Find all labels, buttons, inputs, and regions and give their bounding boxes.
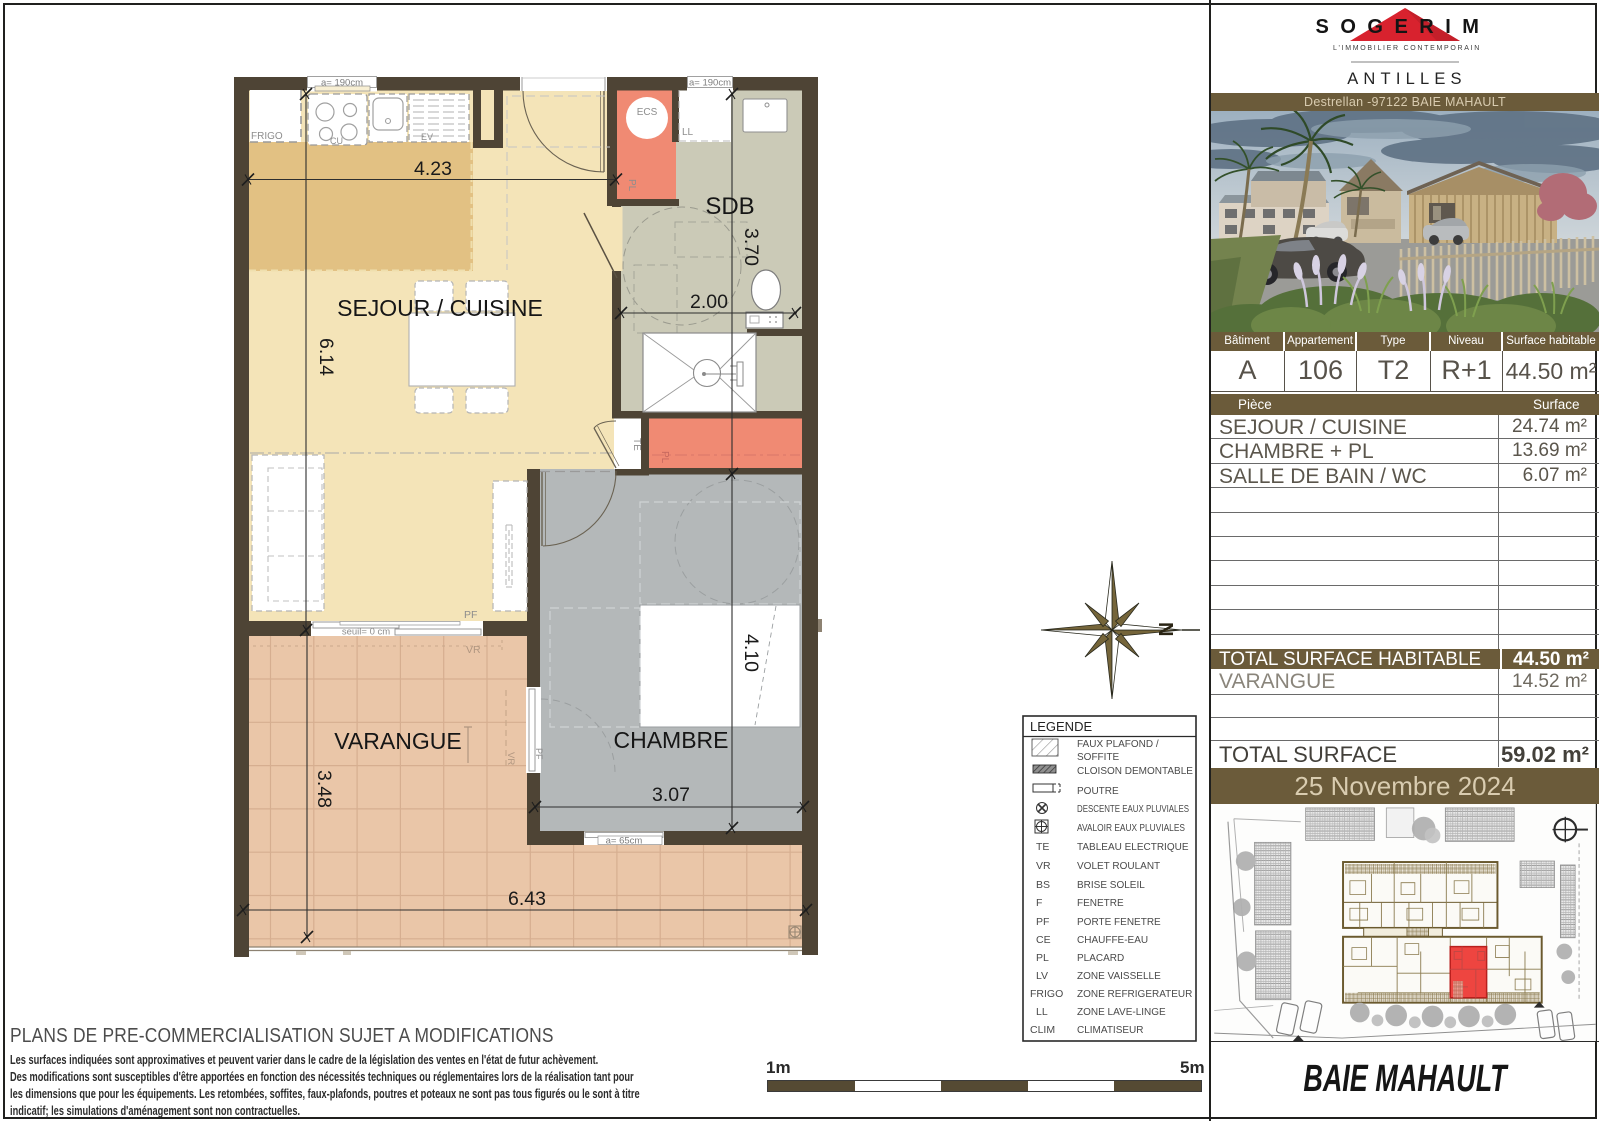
svg-text:a= 190cm: a= 190cm [689, 78, 731, 89]
svg-text:PF: PF [1036, 916, 1049, 928]
svg-text:CLIM: CLIM [1030, 1024, 1055, 1036]
svg-text:seuil= 0 cm: seuil= 0 cm [342, 627, 390, 638]
svg-text:TABLEAU ELECTRIQUE: TABLEAU ELECTRIQUE [1077, 842, 1189, 853]
svg-text:4.23: 4.23 [414, 158, 452, 180]
svg-text:PL: PL [1036, 952, 1049, 964]
svg-text:TE: TE [631, 438, 642, 451]
svg-text:3.70: 3.70 [740, 228, 762, 266]
svg-text:LV: LV [1036, 970, 1048, 982]
svg-text:VOLET ROULANT: VOLET ROULANT [1077, 861, 1160, 872]
svg-text:3.07: 3.07 [652, 784, 690, 806]
svg-text:ZONE VAISSELLE: ZONE VAISSELLE [1077, 971, 1161, 982]
svg-text:CE: CE [1036, 934, 1051, 946]
svg-text:BRISE SOLEIL: BRISE SOLEIL [1077, 880, 1145, 891]
svg-text:a= 190cm: a= 190cm [321, 78, 363, 89]
svg-text:TE: TE [1036, 841, 1049, 853]
svg-text:PORTE FENETRE: PORTE FENETRE [1077, 917, 1161, 928]
svg-text:F: F [1036, 897, 1042, 909]
svg-text:VR: VR [1036, 860, 1051, 872]
svg-text:N: N [1154, 622, 1176, 636]
svg-text:CHAMBRE: CHAMBRE [613, 727, 728, 753]
svg-text:SDB: SDB [705, 193, 754, 220]
svg-text:LEGENDE: LEGENDE [1030, 719, 1092, 734]
svg-text:SOFFITE: SOFFITE [1077, 752, 1120, 763]
svg-text:CHAUFFE-EAU: CHAUFFE-EAU [1077, 935, 1148, 946]
svg-text:BS: BS [1036, 879, 1050, 891]
svg-text:6.14: 6.14 [315, 338, 337, 376]
svg-text:2.00: 2.00 [690, 291, 728, 313]
svg-text:VR: VR [466, 644, 481, 656]
svg-text:SEJOUR / CUISINE: SEJOUR / CUISINE [337, 295, 543, 321]
svg-text:L'IMMOBILIER CONTEMPORAIN: L'IMMOBILIER CONTEMPORAIN [1333, 45, 1481, 52]
svg-text:ZONE LAVE-LINGE: ZONE LAVE-LINGE [1077, 1007, 1166, 1018]
svg-text:CLOISON DEMONTABLE: CLOISON DEMONTABLE [1077, 766, 1193, 777]
svg-text:VR: VR [505, 752, 516, 765]
svg-text:PL: PL [659, 451, 670, 464]
svg-text:ZONE REFRIGERATEUR: ZONE REFRIGERATEUR [1077, 989, 1192, 1000]
svg-text:CLIMATISEUR: CLIMATISEUR [1077, 1025, 1144, 1036]
svg-text:PL: PL [626, 179, 637, 192]
svg-text:LL: LL [1036, 1006, 1048, 1018]
svg-text:ECS: ECS [637, 107, 658, 118]
svg-text:SOGERIM: SOGERIM [1316, 16, 1491, 38]
svg-text:4.10: 4.10 [740, 634, 762, 672]
svg-text:POUTRE: POUTRE [1077, 786, 1119, 797]
svg-text:ANTILLES: ANTILLES [1347, 70, 1467, 88]
svg-text:EV: EV [421, 132, 433, 142]
svg-text:3.48: 3.48 [313, 770, 335, 808]
svg-text:AVALOIR EAUX PLUVIALES: AVALOIR EAUX PLUVIALES [1077, 823, 1185, 834]
svg-text:FRIGO: FRIGO [1030, 988, 1063, 1000]
svg-text:FAUX PLAFOND /: FAUX PLAFOND / [1077, 739, 1159, 750]
svg-text:VARANGUE: VARANGUE [334, 728, 461, 754]
svg-text:CU: CU [330, 136, 343, 146]
svg-text:6.43: 6.43 [508, 888, 546, 910]
svg-text:PF: PF [534, 748, 544, 760]
svg-text:PF: PF [464, 609, 477, 621]
svg-text:FRIGO: FRIGO [251, 131, 283, 142]
svg-text:a= 65cm: a= 65cm [606, 836, 643, 847]
svg-text:FENETRE: FENETRE [1077, 898, 1124, 909]
svg-text:LL: LL [682, 127, 694, 138]
svg-text:DESCENTE EAUX PLUVIALES: DESCENTE EAUX PLUVIALES [1077, 804, 1189, 815]
svg-text:PLACARD: PLACARD [1077, 953, 1124, 964]
